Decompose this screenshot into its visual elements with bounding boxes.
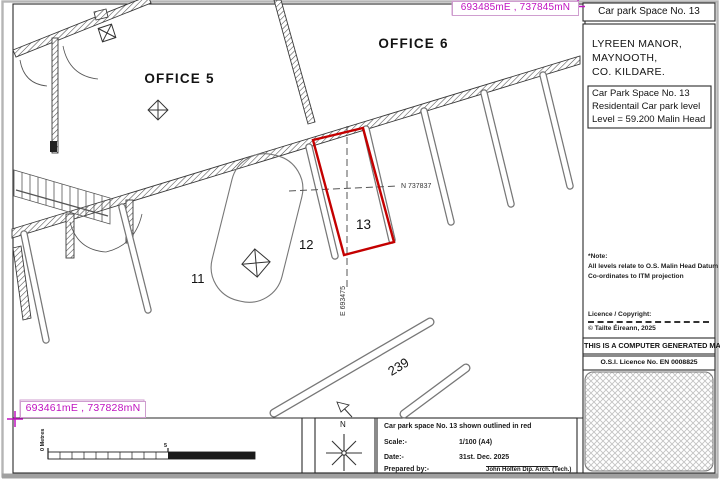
void-crosshatch-area [585,372,713,471]
post [50,141,57,152]
column-icon [148,100,168,120]
north-letter: N [340,420,346,429]
drawing-sheet: 693485mE , 737845mN 693461mE , 737828mN … [0,0,720,480]
office-divider-wall [274,0,315,124]
table-scale-label: Scale:- [384,439,407,447]
table-date-value: 31st. Dec. 2025 [459,454,509,462]
panel-title: Car park Space No. 13 [584,6,714,18]
address-line: LYREEN MANOR, [592,38,682,50]
table-outline-note: Car park space No. 13 shown outlined in … [384,423,531,431]
divider-dashed-line [588,321,709,323]
column-icon [242,249,270,277]
space-info-line: Residentail Car park level [592,102,700,113]
note-line: Co-ordinates to ITM projection [588,273,684,281]
scale-bar [48,448,255,459]
bottom-left-coordinates-text: 693461mE , 737828mN [26,402,141,414]
top-right-coordinates: 693485mE , 737845mN [452,1,579,16]
table-prepared-label: Prepared by:- [384,466,429,474]
prepared-by-name: John Holten Dip. Arch. (Tech.) [486,467,571,474]
space-13-label: 13 [356,217,371,233]
note-line: All levels relate to O.S. Malin Head Dat… [588,263,718,271]
scale-zero-label: 0 Metres [40,429,46,451]
table-scale-value: 1/100 (A4) [459,439,492,447]
building-walls [12,0,580,320]
osi-licence: O.S.I. Licence No. EN 0008825 [584,359,714,367]
top-left-wall [13,0,151,57]
note-line: *Note: [588,253,607,261]
north-compass-icon [326,434,362,471]
address-line: CO. KILDARE. [592,66,665,78]
columns [50,24,270,277]
office5-label: OFFICE 5 [132,71,227,87]
table-date-label: Date:- [384,454,404,462]
kerb-islands [274,322,466,414]
space-12-label: 12 [299,238,313,253]
left-interior-wall [52,38,58,153]
copyright: © Tailte Éireann, 2025 [588,325,656,333]
space-11-label: 11 [191,272,205,287]
generated-map-notice: THIS IS A COMPUTER GENERATED MAP [584,342,714,350]
space-info-line: Car Park Space No. 13 [592,89,690,100]
east-coordinate-label: E 693475 [340,286,348,316]
bottom-left-coordinates: 693461mE , 737828mN [20,401,146,418]
door-jamb-left [66,214,74,258]
scale-mid-label: 5 [164,443,167,449]
licence-label: Licence / Copyright: [588,311,651,319]
north-coordinate-label: N 737837 [401,183,431,191]
address-line: MAYNOOTH, [592,52,658,64]
column-icon [98,24,116,42]
leader-arrow [337,402,352,417]
space-info-line: Level = 59.200 Malin Head [592,115,705,126]
top-right-coordinates-text: 693485mE , 737845mN [461,2,570,13]
office6-label: OFFICE 6 [366,36,461,52]
